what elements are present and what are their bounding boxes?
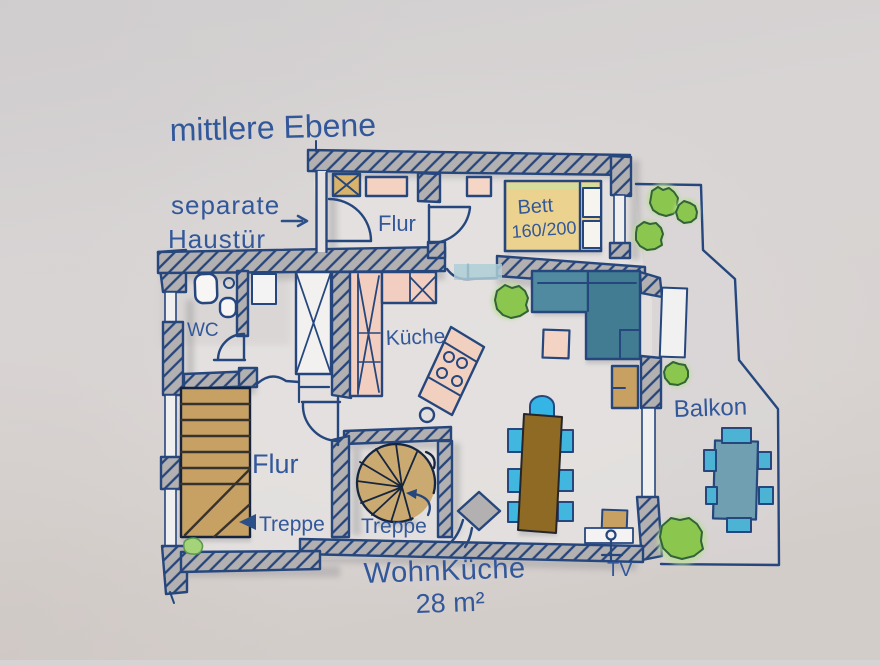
svg-text:Balkon: Balkon [673, 393, 747, 423]
svg-text:Treppe: Treppe [361, 515, 427, 538]
svg-text:Flur: Flur [378, 211, 416, 236]
svg-text:WohnKüche: WohnKüche [363, 552, 526, 590]
svg-text:Bett: Bett [517, 195, 554, 219]
svg-text:separate: separate [171, 190, 280, 220]
svg-text:Küche: Küche [385, 325, 445, 350]
svg-text:Treppe: Treppe [259, 513, 325, 536]
svg-text:mittlere Ebene: mittlere Ebene [169, 107, 376, 148]
svg-text:Flur: Flur [252, 449, 299, 479]
svg-text:28 m²: 28 m² [415, 587, 485, 619]
svg-text:WC: WC [187, 320, 219, 341]
svg-text:TV: TV [607, 559, 633, 581]
